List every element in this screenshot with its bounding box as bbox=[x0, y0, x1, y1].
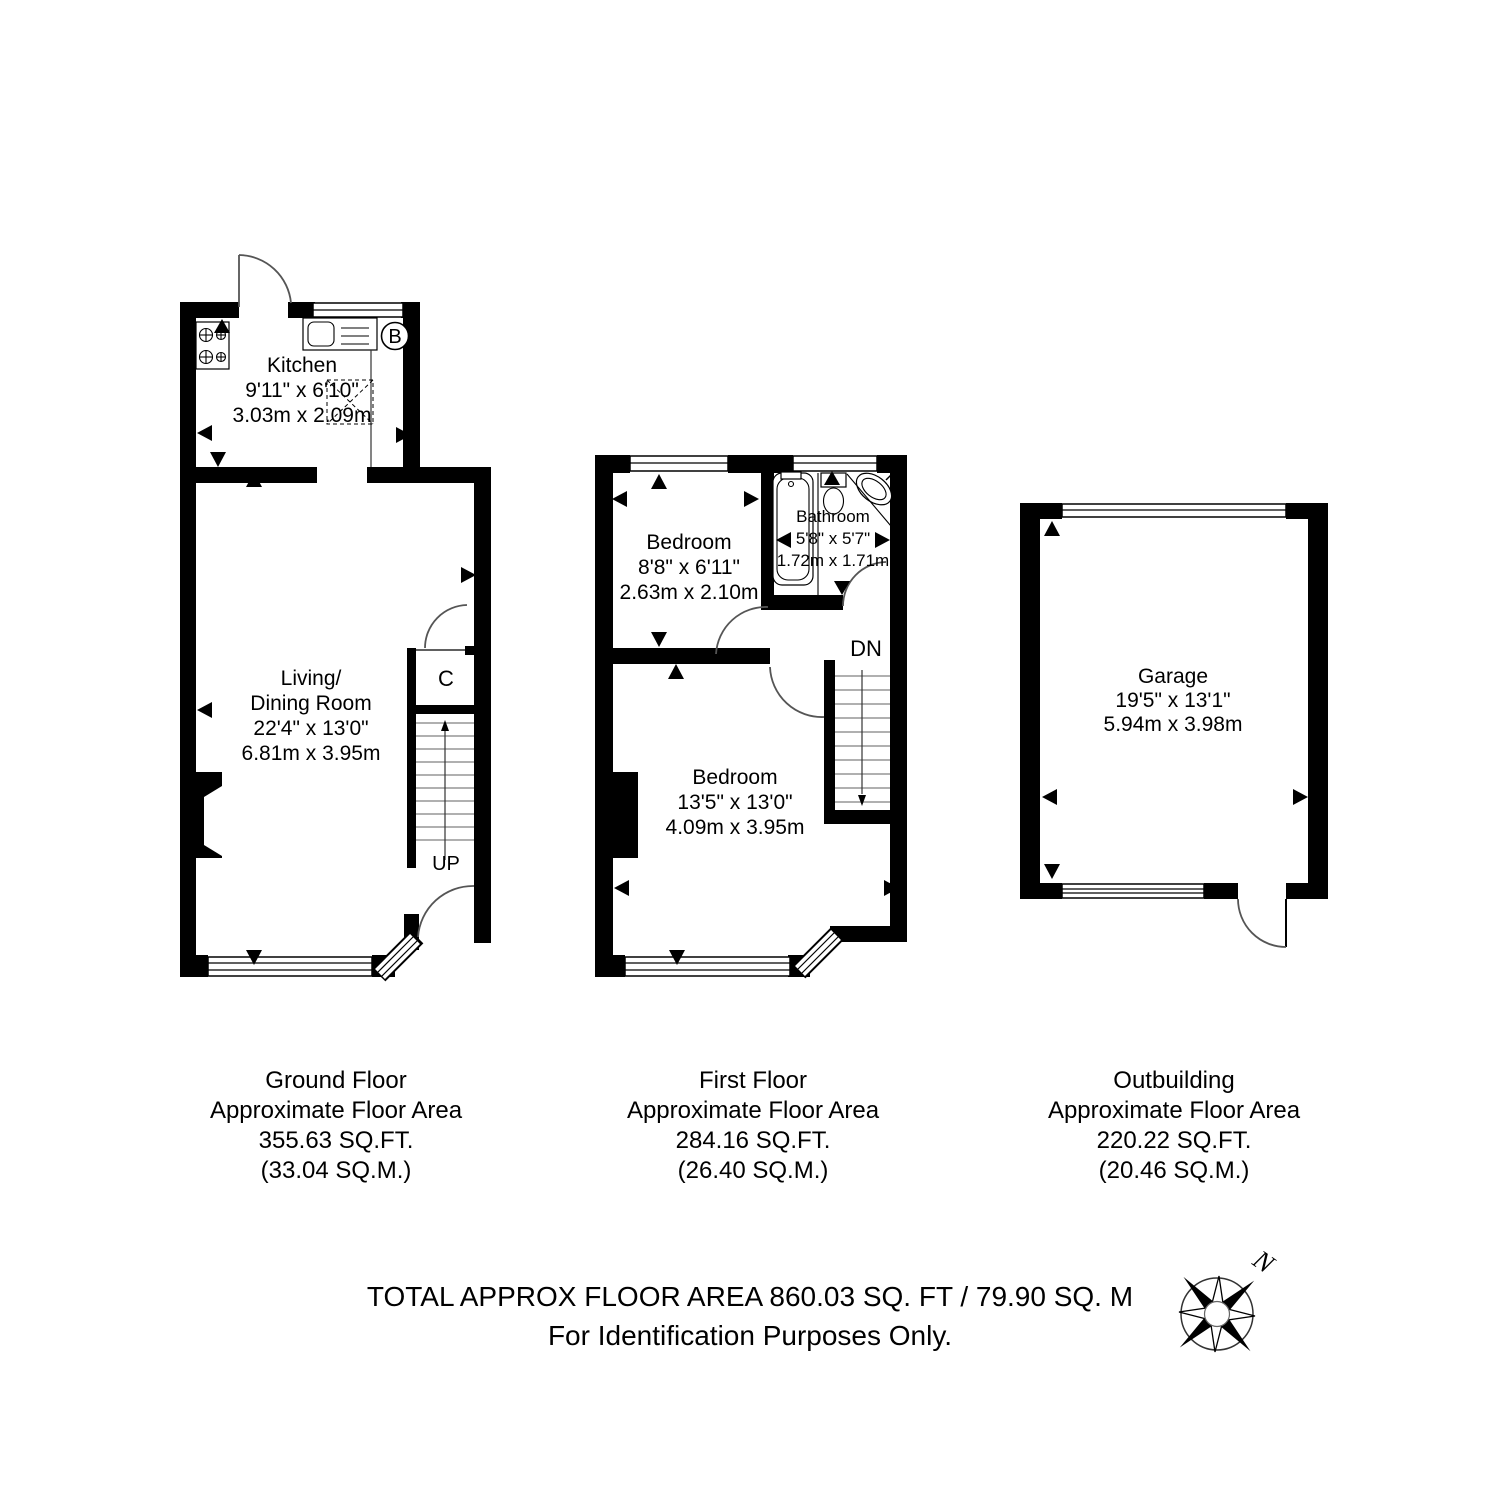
first-caption-line3: 284.16 SQ.FT. bbox=[543, 1126, 963, 1156]
outbuilding-caption-line4: (20.46 SQ.M.) bbox=[964, 1156, 1384, 1186]
first-caption-line1: First Floor bbox=[543, 1066, 963, 1096]
stairs-down-label: DN bbox=[850, 636, 882, 661]
compass-north-label: N bbox=[1247, 1244, 1281, 1281]
stairs-up-label: UP bbox=[432, 853, 460, 875]
living-dining-size-imperial: 22'4" x 13'0" bbox=[201, 716, 421, 741]
bathroom-size-imperial: 5'8" x 5'7" bbox=[733, 528, 933, 550]
garage-door bbox=[1238, 899, 1286, 947]
garage-size-metric: 5.94m x 3.98m bbox=[1063, 713, 1283, 737]
garage-name: Garage bbox=[1063, 665, 1283, 689]
kitchen-label: Kitchen 9'11" x 6'10" 3.03m x 2.09m bbox=[192, 353, 412, 428]
outbuilding-caption-line2: Approximate Floor Area bbox=[964, 1096, 1384, 1126]
ground-caption-line1: Ground Floor bbox=[126, 1066, 546, 1096]
living-dining-name-line1: Living/ bbox=[201, 666, 421, 691]
kitchen-size-metric: 3.03m x 2.09m bbox=[192, 403, 412, 428]
bedroom-front-size-metric: 2.63m x 2.10m bbox=[579, 580, 799, 605]
bathroom-name: Bathroom bbox=[733, 506, 933, 528]
bedroom-rear-size-metric: 4.09m x 3.95m bbox=[625, 815, 845, 840]
ground-caption-line3: 355.63 SQ.FT. bbox=[126, 1126, 546, 1156]
outbuilding-caption-line1: Outbuilding bbox=[964, 1066, 1384, 1096]
first-caption-line4: (26.40 SQ.M.) bbox=[543, 1156, 963, 1186]
outbuilding-caption: Outbuilding Approximate Floor Area 220.2… bbox=[964, 1066, 1384, 1186]
stairs-up-arrow bbox=[441, 720, 449, 731]
bedroom-rear-name: Bedroom bbox=[625, 765, 845, 790]
bathroom-label: Bathroom 5'8" x 5'7" 1.72m x 1.71m bbox=[733, 506, 933, 572]
boiler-label: B bbox=[388, 326, 401, 348]
kitchen-sink-unit bbox=[303, 318, 377, 350]
ground-caption-line2: Approximate Floor Area bbox=[126, 1096, 546, 1126]
living-dining-label: Living/ Dining Room 22'4" x 13'0" 6.81m … bbox=[201, 666, 421, 766]
fireplace-recess bbox=[204, 786, 222, 856]
cupboard-door-arc bbox=[425, 605, 467, 648]
outbuilding-caption-line3: 220.22 SQ.FT. bbox=[964, 1126, 1384, 1156]
floorplan-page: B C UP bbox=[0, 0, 1500, 1500]
ground-caption-line4: (33.04 SQ.M.) bbox=[126, 1156, 546, 1186]
front-door-arc bbox=[418, 886, 474, 937]
kitchen-name: Kitchen bbox=[192, 353, 412, 378]
bedroom-front-door-arc bbox=[716, 607, 768, 654]
ground-floor-caption: Ground Floor Approximate Floor Area 355.… bbox=[126, 1066, 546, 1186]
first-caption-line2: Approximate Floor Area bbox=[543, 1096, 963, 1126]
stairs-down-arrow bbox=[858, 795, 866, 806]
ground-floor-plan: B C UP bbox=[175, 240, 495, 985]
garage-door-arc bbox=[1238, 899, 1286, 947]
bedroom-rear-door-arc bbox=[770, 667, 824, 717]
compass-rose-icon: N bbox=[1150, 1230, 1300, 1370]
bedroom-rear-label: Bedroom 13'5" x 13'0" 4.09m x 3.95m bbox=[625, 765, 845, 840]
living-dining-name-line2: Dining Room bbox=[201, 691, 421, 716]
first-floor-caption: First Floor Approximate Floor Area 284.1… bbox=[543, 1066, 963, 1186]
kitchen-back-door-arc bbox=[239, 255, 291, 303]
bathroom-size-metric: 1.72m x 1.71m bbox=[733, 550, 933, 572]
cupboard-label: C bbox=[438, 666, 454, 691]
garage-label: Garage 19'5" x 13'1" 5.94m x 3.98m bbox=[1063, 665, 1283, 737]
kitchen-size-imperial: 9'11" x 6'10" bbox=[192, 378, 412, 403]
garage-size-imperial: 19'5" x 13'1" bbox=[1063, 689, 1283, 713]
bedroom-rear-size-imperial: 13'5" x 13'0" bbox=[625, 790, 845, 815]
living-dining-size-metric: 6.81m x 3.95m bbox=[201, 741, 421, 766]
